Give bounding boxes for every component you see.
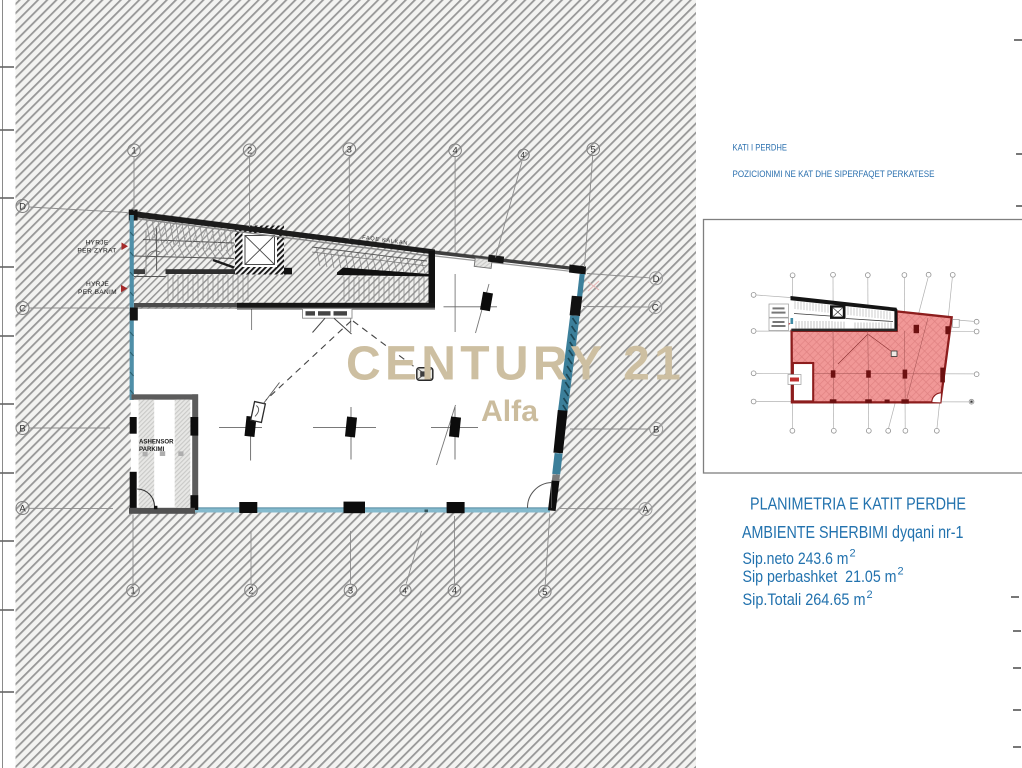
svg-text:2: 2 <box>867 589 873 601</box>
svg-text:AMBIENTE SHERBIMI dyqani nr-1: AMBIENTE SHERBIMI dyqani nr-1 <box>742 522 964 542</box>
svg-text:Alfa: Alfa <box>481 395 538 428</box>
svg-text:CENTURY 21: CENTURY 21 <box>346 338 685 391</box>
svg-text:4: 4 <box>452 586 457 597</box>
svg-text:5: 5 <box>542 587 547 598</box>
svg-text:4': 4' <box>520 150 527 160</box>
svg-text:A: A <box>642 505 649 516</box>
svg-text:D: D <box>19 202 26 213</box>
svg-text:KATI I PERDHE: KATI I PERDHE <box>733 143 788 153</box>
svg-text:B: B <box>653 425 659 436</box>
svg-text:POZICIONIMI NE KAT DHE SIPERFA: POZICIONIMI NE KAT DHE SIPERFAQET PERKAT… <box>733 169 935 179</box>
svg-text:Sip perbashket 21.05 m: Sip perbashket 21.05 m <box>743 567 897 586</box>
svg-text:PER BANIM: PER BANIM <box>78 289 117 296</box>
svg-text:4': 4' <box>402 586 409 596</box>
svg-text:ASHENSOR: ASHENSOR <box>139 439 174 446</box>
svg-text:HYRJE: HYRJE <box>86 281 109 288</box>
svg-text:HYRJE: HYRJE <box>85 240 108 247</box>
svg-text:3: 3 <box>348 586 353 597</box>
svg-text:4: 4 <box>452 146 457 157</box>
svg-text:2: 2 <box>248 586 253 597</box>
svg-text:Sip.neto 243.6 m: Sip.neto 243.6 m <box>743 549 849 568</box>
svg-text:3: 3 <box>347 145 352 156</box>
svg-text:PER ZYRAT: PER ZYRAT <box>77 247 116 254</box>
svg-text:2: 2 <box>247 146 252 157</box>
svg-text:1: 1 <box>130 586 135 597</box>
svg-text:C: C <box>19 304 26 315</box>
svg-text:1: 1 <box>131 146 136 157</box>
svg-text:A: A <box>19 504 26 515</box>
svg-text:5: 5 <box>591 145 596 156</box>
svg-text:D: D <box>653 274 660 285</box>
svg-text:PLANIMETRIA E KATIT PERDHE: PLANIMETRIA E KATIT PERDHE <box>750 494 966 514</box>
svg-text:B: B <box>19 424 25 435</box>
svg-text:2: 2 <box>850 548 856 560</box>
svg-text:Sip.Totali 264.65 m: Sip.Totali 264.65 m <box>743 590 866 609</box>
svg-text:C: C <box>652 303 659 314</box>
svg-text:2: 2 <box>898 566 904 578</box>
